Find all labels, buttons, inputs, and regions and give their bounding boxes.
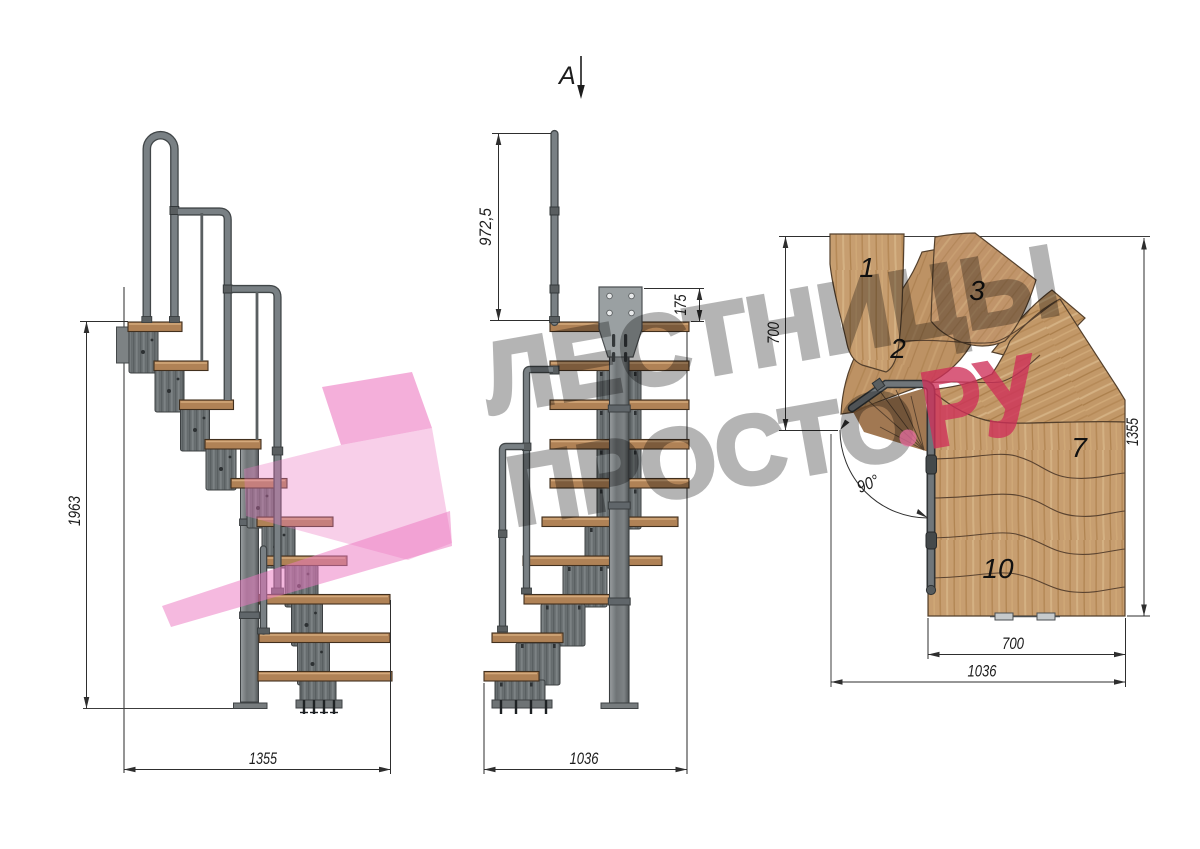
svg-text:1355: 1355 [249, 749, 277, 768]
svg-text:700: 700 [1002, 634, 1024, 653]
svg-text:1036: 1036 [570, 749, 599, 768]
svg-text:7: 7 [1071, 432, 1088, 463]
svg-text:10: 10 [982, 553, 1014, 584]
svg-text:972,5: 972,5 [476, 208, 495, 246]
svg-text:1036: 1036 [968, 662, 997, 681]
svg-text:А: А [557, 62, 576, 90]
svg-text:1355: 1355 [1123, 418, 1142, 446]
svg-text:1963: 1963 [65, 496, 84, 526]
